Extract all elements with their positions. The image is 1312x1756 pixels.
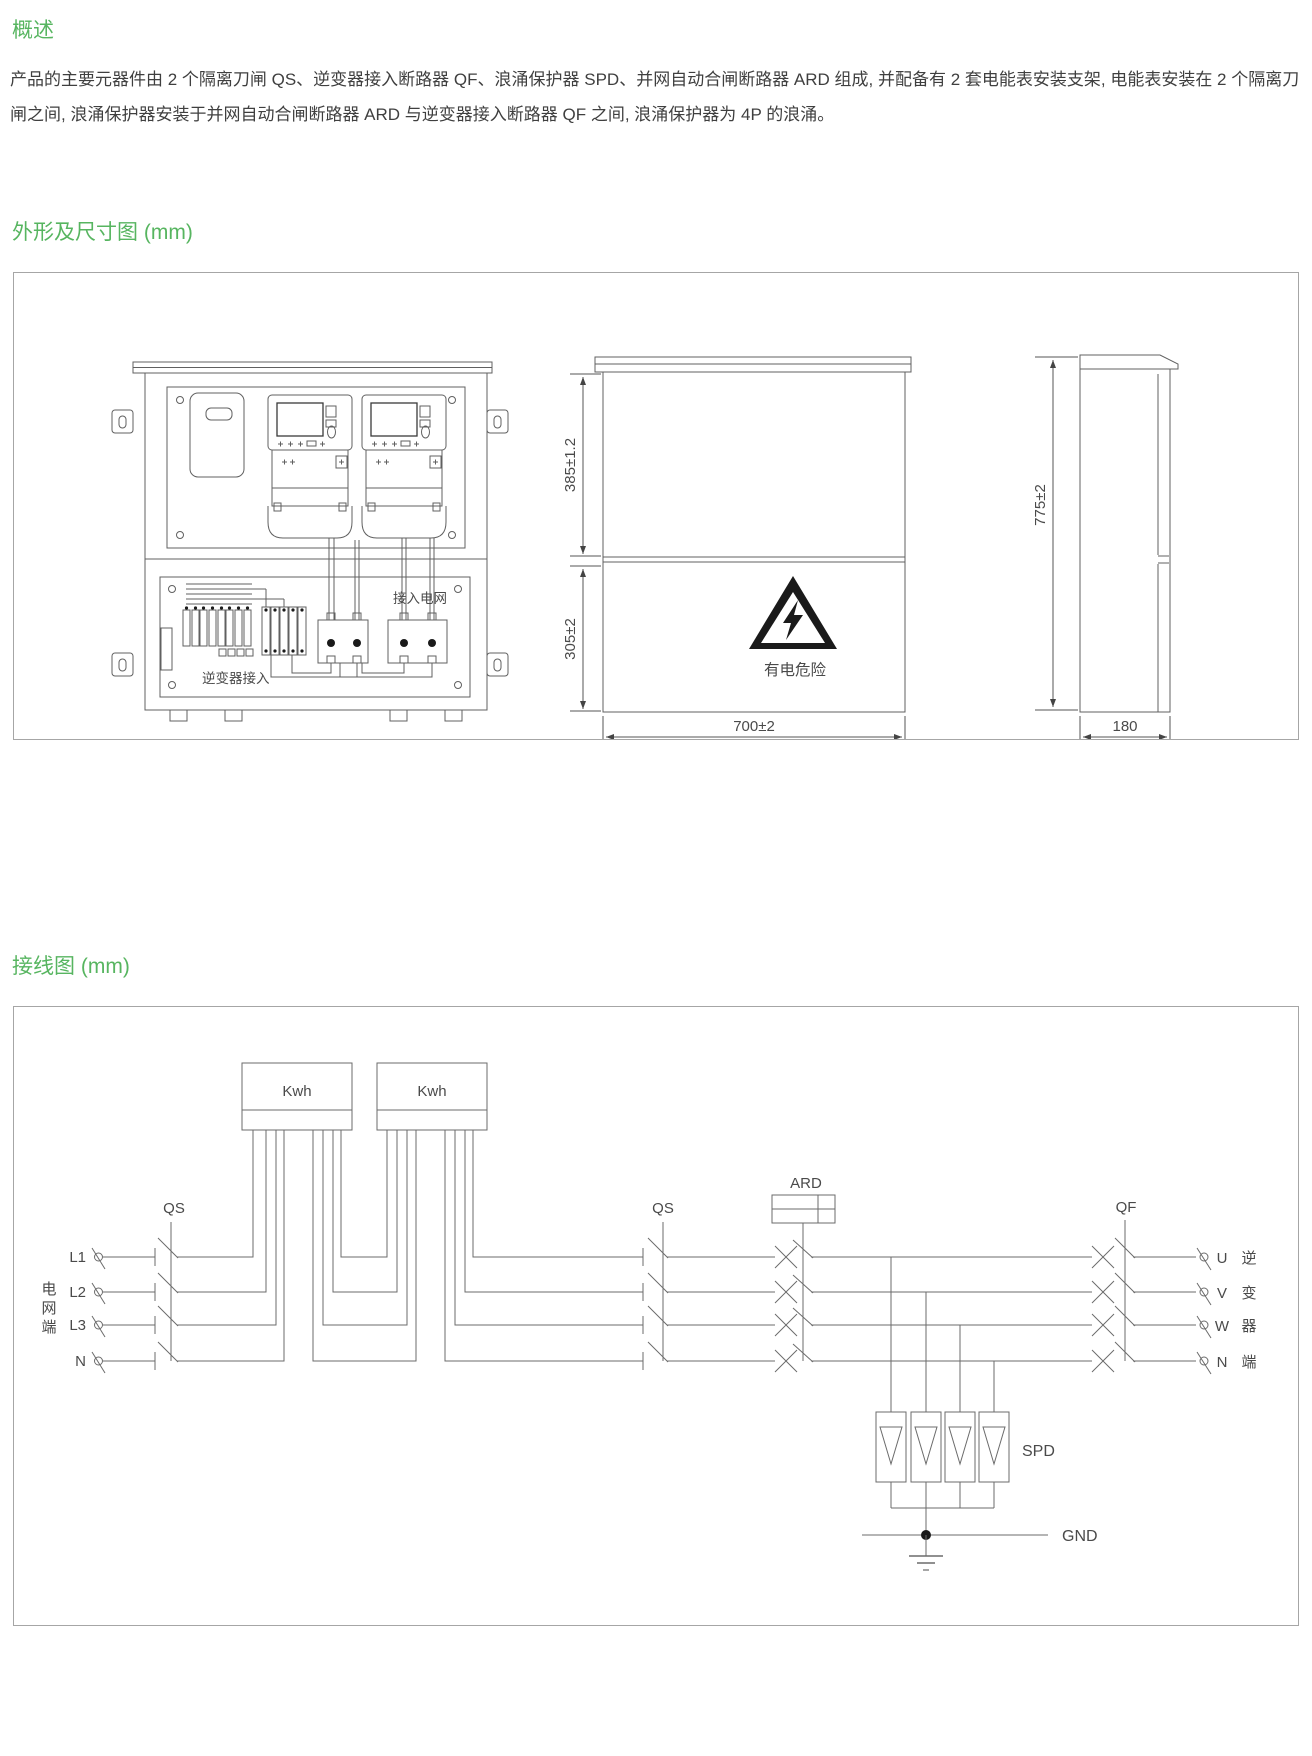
inverter-terminals <box>1197 1248 1211 1374</box>
terminal-u-label: U <box>1217 1250 1228 1267</box>
wires-meter1-meter2 <box>313 1130 416 1361</box>
dim-lines-side <box>1035 357 1170 739</box>
document-pocket <box>190 393 244 477</box>
overview-paragraph: 产品的主要元器件由 2 个隔离刀闸 QS、逆变器接入断路器 QF、浪涌保护器 S… <box>10 62 1302 132</box>
dim-775-label: 775±2 <box>1032 484 1049 526</box>
terminal-l1-label: L1 <box>69 1249 86 1266</box>
inverter-side-char-2: 变 <box>1241 1285 1256 1302</box>
isolator-qs2-symbol <box>643 1222 775 1370</box>
side-view <box>1035 355 1178 739</box>
outline-drawing-svg: 接入电网 逆变器接入 有电危险 385±1.2 305±2 700±2 <box>14 273 1298 739</box>
terminal-n-label: N <box>75 1353 86 1370</box>
grid-side-char-3: 端 <box>41 1319 56 1336</box>
dimension-view <box>570 357 911 739</box>
inverter-side-char-1: 逆 <box>1241 1250 1256 1267</box>
front-view <box>112 362 508 721</box>
meter-display <box>277 403 323 436</box>
terminal-w-label: W <box>1215 1318 1230 1335</box>
cabinet-feet <box>170 710 462 721</box>
overview-heading: 概述 <box>12 14 54 44</box>
isolator-qs1-symbol <box>158 1222 178 1362</box>
wires-meter2-qs2 <box>445 1130 643 1361</box>
breaker-inverter <box>318 613 368 663</box>
datasheet-page: { "colors": { "heading_green": "#57b560"… <box>0 0 1312 1756</box>
terminal-l2-label: L2 <box>69 1284 86 1301</box>
inverter-side-char-3: 器 <box>1241 1318 1256 1335</box>
energy-meter-1 <box>268 395 352 538</box>
dim-180-label: 180 <box>1112 718 1137 735</box>
grid-terminals <box>92 1248 155 1373</box>
energy-meter-2 <box>362 395 446 538</box>
dim-305-label: 305±2 <box>562 618 579 660</box>
recloser-ard-label: ARD <box>790 1175 822 1192</box>
meter-display <box>371 403 417 436</box>
meter-1-label: Kwh <box>282 1083 311 1100</box>
outline-section-heading: 外形及尺寸图 (mm) <box>12 216 193 246</box>
wiring-diagram-box: Kwh Kwh L1 L2 L3 N 电 网 端 QS <box>13 1006 1299 1626</box>
wiring-section-heading: 接线图 (mm) <box>12 950 130 980</box>
grid-side-char-2: 网 <box>41 1300 56 1317</box>
dim-700-label: 700±2 <box>733 718 775 735</box>
terminal-v-label: V <box>1217 1285 1227 1302</box>
meter-button-row <box>278 441 325 447</box>
isolator-qs1-label: QS <box>163 1200 185 1217</box>
ground-label: GND <box>1062 1528 1098 1545</box>
breaker-group-left <box>161 584 284 670</box>
meter-button-row <box>372 441 419 447</box>
inverter-in-label: 逆变器接入 <box>202 670 270 686</box>
electric-hazard-label: 有电危险 <box>764 661 827 679</box>
wiring-drawing-svg: Kwh Kwh L1 L2 L3 N 电 网 端 QS <box>14 1007 1298 1625</box>
terminal-n2-label: N <box>1217 1354 1228 1371</box>
meter-2-label: Kwh <box>417 1083 446 1100</box>
dim-385-label: 385±1.2 <box>562 438 579 492</box>
breaker-group-middle <box>262 607 306 655</box>
ground-symbol <box>862 1530 1048 1570</box>
grid-in-label: 接入电网 <box>393 590 447 606</box>
isolator-qs2-label: QS <box>652 1200 674 1217</box>
breaker-qf-symbol <box>1092 1220 1196 1372</box>
breaker-qf-label: QF <box>1116 1199 1137 1216</box>
terminal-l3-label: L3 <box>69 1317 86 1334</box>
meter-wires <box>329 538 434 620</box>
electric-hazard-icon <box>749 576 837 649</box>
spd-label: SPD <box>1022 1443 1055 1460</box>
recloser-ard-symbol <box>772 1195 1092 1372</box>
spd-symbol <box>876 1257 1009 1535</box>
inverter-side-char-4: 端 <box>1241 1354 1256 1371</box>
wires-qs1-meter1 <box>177 1130 284 1361</box>
breaker-grid <box>388 613 447 663</box>
grid-side-char-1: 电 <box>41 1281 56 1298</box>
outline-diagram-box: 接入电网 逆变器接入 有电危险 385±1.2 305±2 700±2 <box>13 272 1299 740</box>
